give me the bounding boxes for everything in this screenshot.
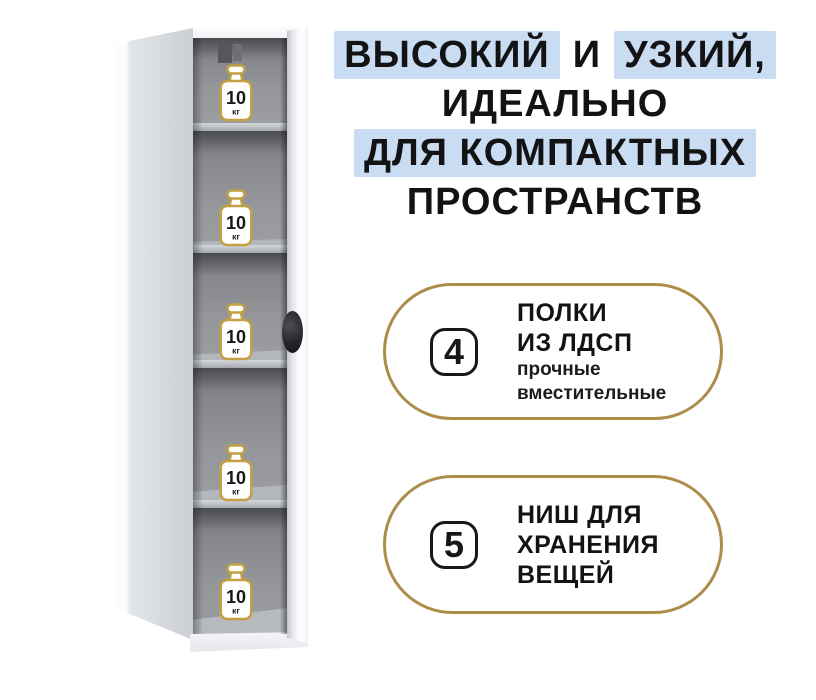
weight-value: 10: [226, 213, 246, 233]
headline-word: И: [573, 36, 601, 74]
feature-title-line: ХРАНЕНИЯ: [517, 530, 659, 560]
weight-capacity-icon: 10 кг: [219, 563, 253, 621]
cabinet-shelf: [193, 360, 287, 368]
feature-title-line: ВЕЩЕЙ: [517, 560, 659, 590]
weight-capacity-icon: 10 кг: [219, 444, 253, 502]
weight-value: 10: [226, 327, 246, 347]
headline-word-highlighted: УЗКИЙ,: [614, 31, 776, 79]
weight-capacity-icon: 10 кг: [219, 189, 253, 247]
weight-unit: кг: [232, 232, 240, 242]
weight-unit: кг: [232, 107, 240, 117]
headline-word-highlighted: ВЫСОКИЙ: [334, 31, 560, 79]
headline-word: ПРОСТРАНСТВ: [407, 183, 703, 221]
headline-word-highlighted: ДЛЯ КОМПАКТНЫХ: [354, 129, 756, 177]
feature-title-line: ПОЛКИ: [517, 298, 666, 328]
feature-subtitle-line: вместительные: [517, 382, 666, 406]
weight-unit: кг: [232, 487, 240, 497]
cabinet-shelf: [193, 123, 287, 131]
cabinet-side-panel: [115, 26, 193, 650]
feature-subtitle-line: прочные: [517, 358, 666, 382]
weight-unit: кг: [232, 346, 240, 356]
hinge-icon: [233, 44, 242, 61]
feature-text: НИШ ДЛЯ ХРАНЕНИЯ ВЕЩЕЙ: [517, 500, 659, 590]
weight-capacity-icon: 10 кг: [219, 303, 253, 361]
product-infographic: 10 кг 10 кг 10 кг: [0, 0, 816, 700]
door-handle-knob: [282, 311, 303, 353]
headline-line-1: ВЫСОКИЙ И УЗКИЙ,: [340, 30, 770, 79]
weight-value: 10: [226, 587, 246, 607]
feature-pill-shelves: 4 ПОЛКИ ИЗ ЛДСП прочные вместительные: [383, 283, 723, 420]
headline: ВЫСОКИЙ И УЗКИЙ, ИДЕАЛЬНО ДЛЯ КОМПАКТНЫХ…: [340, 30, 770, 226]
headline-line-3: ДЛЯ КОМПАКТНЫХ: [340, 128, 770, 177]
feature-text: ПОЛКИ ИЗ ЛДСП прочные вместительные: [517, 298, 666, 406]
feature-title-line: НИШ ДЛЯ: [517, 500, 659, 530]
cabinet-illustration: 10 кг 10 кг 10 кг: [0, 0, 340, 700]
weight-value: 10: [226, 468, 246, 488]
feature-count-badge: 5: [430, 521, 478, 569]
feature-count-badge: 4: [430, 328, 478, 376]
headline-word: ИДЕАЛЬНО: [442, 85, 669, 123]
feature-title-line: ИЗ ЛДСП: [517, 328, 666, 358]
feature-pill-niches: 5 НИШ ДЛЯ ХРАНЕНИЯ ВЕЩЕЙ: [383, 475, 723, 614]
hinge-icon: [218, 43, 232, 63]
weight-unit: кг: [232, 606, 240, 616]
headline-line-2: ИДЕАЛЬНО: [340, 79, 770, 128]
headline-line-4: ПРОСТРАНСТВ: [340, 177, 770, 226]
weight-capacity-icon: 10 кг: [219, 64, 253, 122]
weight-value: 10: [226, 88, 246, 108]
